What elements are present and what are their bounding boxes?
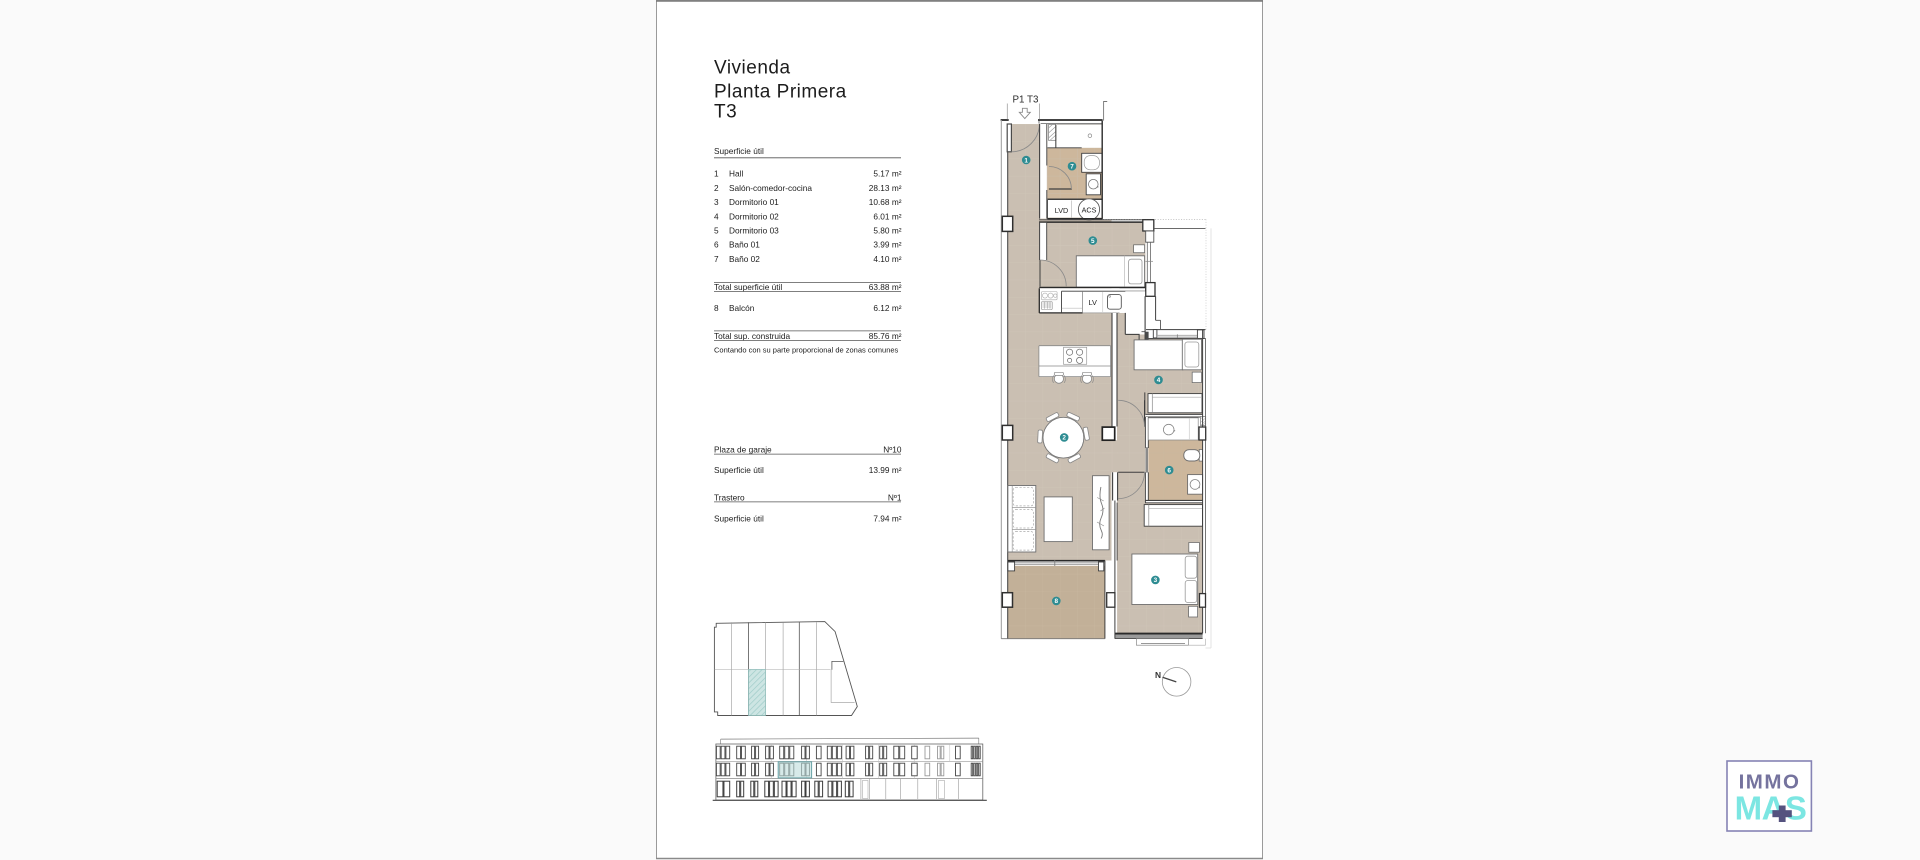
svg-text:LV: LV: [1088, 298, 1097, 307]
svg-text:63.88 m²: 63.88 m²: [869, 282, 902, 292]
svg-text:1: 1: [1024, 157, 1028, 164]
svg-text:6: 6: [1167, 467, 1171, 474]
svg-text:T3: T3: [714, 102, 737, 123]
svg-text:7.94 m²: 7.94 m²: [873, 513, 901, 523]
svg-text:Balcón: Balcón: [729, 303, 755, 313]
svg-text:Nº1: Nº1: [888, 492, 902, 502]
svg-text:5.17 m²: 5.17 m²: [873, 169, 901, 179]
svg-text:1: 1: [714, 169, 719, 179]
svg-text:P1 T3: P1 T3: [1013, 94, 1040, 105]
svg-text:ACS: ACS: [1082, 205, 1097, 214]
svg-text:3: 3: [714, 197, 719, 207]
svg-text:2: 2: [1062, 435, 1066, 442]
svg-text:13.99 m²: 13.99 m²: [869, 465, 902, 475]
svg-text:Total superficie útil: Total superficie útil: [714, 282, 782, 292]
svg-text:Superficie útil: Superficie útil: [714, 465, 764, 475]
svg-text:Trastero: Trastero: [714, 492, 745, 502]
svg-text:Baño 01: Baño 01: [729, 240, 760, 250]
svg-text:8: 8: [1055, 598, 1059, 605]
svg-text:2: 2: [714, 183, 719, 193]
svg-text:6.01 m²: 6.01 m²: [873, 211, 901, 221]
svg-text:Salón-comedor-cocina: Salón-comedor-cocina: [729, 183, 812, 193]
svg-text:Dormitorio 03: Dormitorio 03: [729, 226, 779, 236]
svg-text:Baño 02: Baño 02: [729, 254, 760, 264]
svg-text:Contando con su parte proporci: Contando con su parte proporcional de zo…: [714, 346, 899, 355]
svg-text:Superficie útil: Superficie útil: [714, 146, 764, 156]
svg-text:Dormitorio 02: Dormitorio 02: [729, 211, 779, 221]
svg-text:3: 3: [1154, 577, 1158, 584]
svg-text:5.80 m²: 5.80 m²: [873, 226, 901, 236]
svg-text:3.99 m²: 3.99 m²: [873, 240, 901, 250]
svg-text:5: 5: [714, 226, 719, 236]
svg-text:4.10 m²: 4.10 m²: [873, 254, 901, 264]
svg-text:6.12 m²: 6.12 m²: [873, 303, 901, 313]
svg-text:7: 7: [714, 254, 719, 264]
svg-text:8: 8: [714, 303, 719, 313]
svg-text:MAS: MAS: [1735, 790, 1807, 827]
svg-text:4: 4: [1157, 377, 1161, 384]
svg-text:6: 6: [714, 240, 719, 250]
svg-text:4: 4: [714, 211, 719, 221]
svg-text:Total sup. construida: Total sup. construida: [714, 331, 790, 341]
svg-text:LVD: LVD: [1055, 206, 1068, 215]
svg-text:Dormitorio 01: Dormitorio 01: [729, 197, 779, 207]
svg-text:Plaza de garaje: Plaza de garaje: [714, 444, 772, 454]
svg-text:10.68 m²: 10.68 m²: [869, 197, 902, 207]
svg-text:28.13 m²: 28.13 m²: [869, 183, 902, 193]
svg-text:5: 5: [1091, 238, 1095, 245]
svg-text:Nº10: Nº10: [883, 444, 902, 454]
svg-text:Superficie útil: Superficie útil: [714, 513, 764, 523]
svg-text:85.76 m²: 85.76 m²: [869, 331, 902, 341]
svg-text:Hall: Hall: [729, 169, 743, 179]
svg-text:7: 7: [1070, 164, 1074, 171]
svg-text:Vivienda: Vivienda: [714, 58, 791, 79]
svg-text:Planta Primera: Planta Primera: [714, 81, 847, 102]
svg-text:N: N: [1155, 670, 1161, 680]
